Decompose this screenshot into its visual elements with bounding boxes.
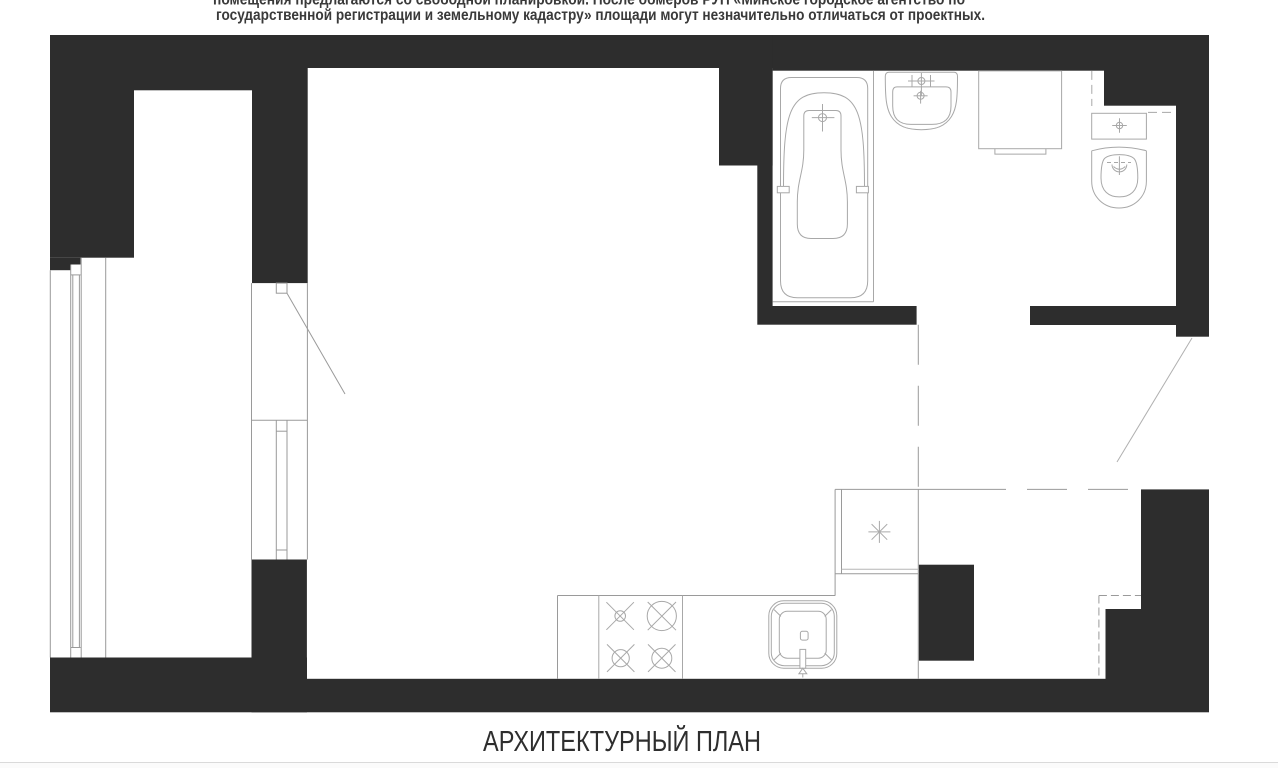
svg-text:АРХИТЕКТУРНЫЙ ПЛАН: АРХИТЕКТУРНЫЙ ПЛАН bbox=[483, 724, 761, 758]
svg-text:государственной регистрации и: государственной регистрации и земельному… bbox=[216, 7, 985, 24]
